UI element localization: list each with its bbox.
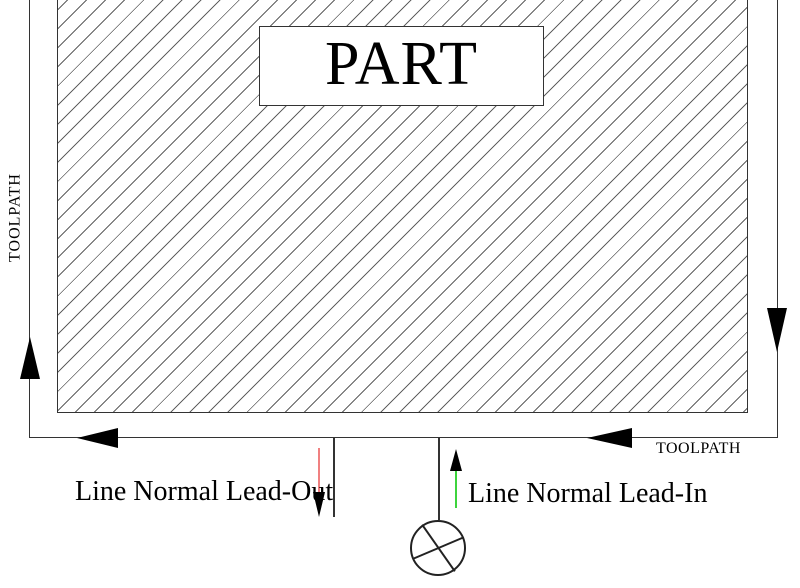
part-label: PART [325,33,478,99]
leadin-direction-line [455,471,457,508]
toolpath-arrow-left-icon [587,428,632,448]
toolpath-diagram: PART TOOLPATH TOOLPATH Line Normal Lead-… [0,0,800,588]
leadin-arrow-up-icon [450,449,462,471]
part-label-box: PART [259,26,544,106]
toolpath-arrow-up-icon [20,337,40,379]
leadout-line [333,438,335,517]
leadin-label: Line Normal Lead-In [468,478,707,510]
leadout-label: Line Normal Lead-Out [75,476,308,508]
toolpath-arrow-left-icon [77,428,118,448]
leadin-line [438,438,440,520]
toolpath-arrow-down-icon [767,308,787,352]
toolpath-label-left: TOOLPATH [7,158,24,278]
toolpath-label-bottom: TOOLPATH [656,440,741,458]
